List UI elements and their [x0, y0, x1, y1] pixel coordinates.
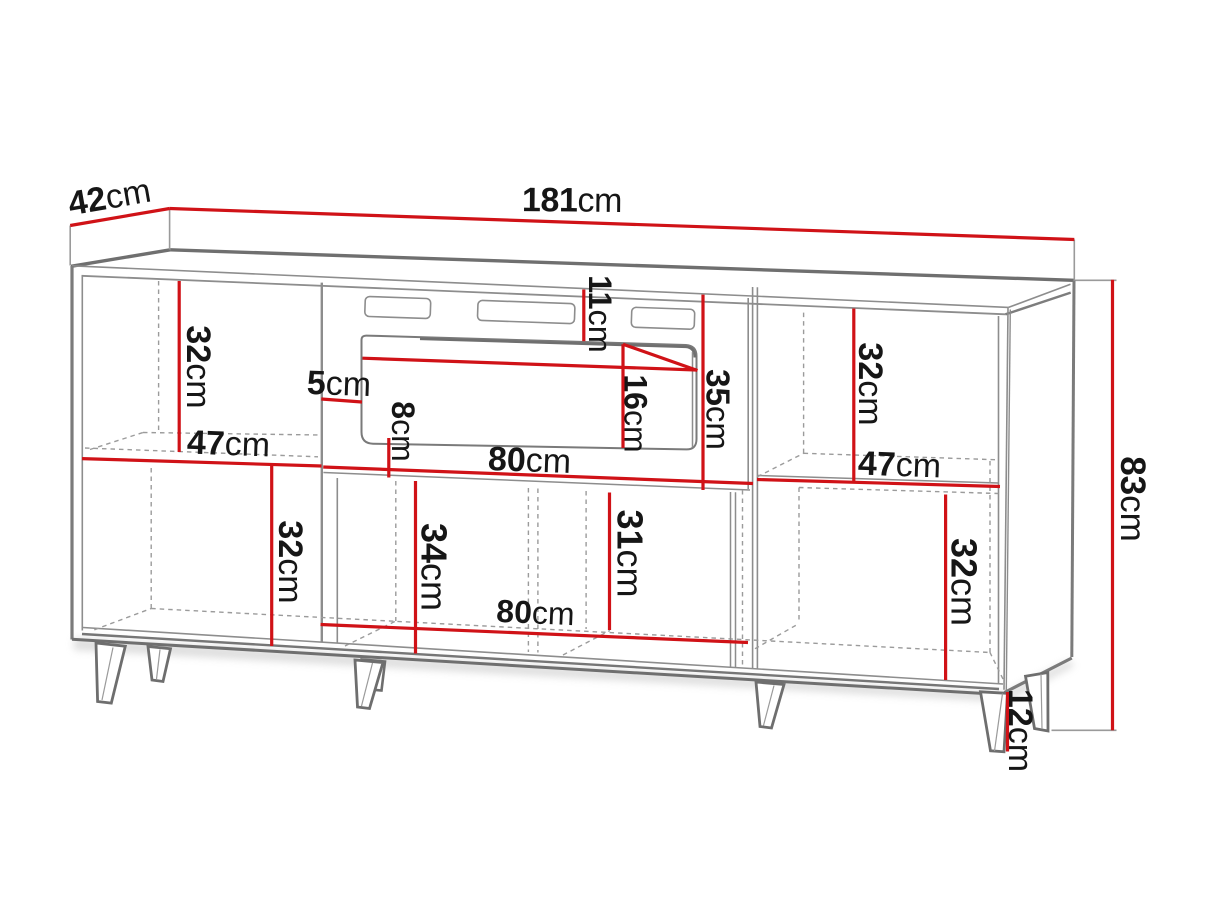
svg-text:35cm: 35cm: [700, 369, 737, 450]
svg-text:16cm: 16cm: [618, 374, 654, 452]
svg-text:80cm: 80cm: [496, 593, 576, 632]
svg-text:181cm: 181cm: [522, 181, 622, 220]
svg-text:80cm: 80cm: [487, 440, 571, 481]
svg-text:8cm: 8cm: [385, 401, 421, 461]
svg-text:11cm: 11cm: [582, 275, 618, 353]
svg-text:12cm: 12cm: [1001, 689, 1039, 772]
svg-text:32cm: 32cm: [851, 342, 889, 425]
svg-text:83cm: 83cm: [1114, 456, 1153, 542]
svg-text:47cm: 47cm: [186, 424, 270, 465]
svg-text:32cm: 32cm: [179, 325, 217, 408]
svg-text:32cm: 32cm: [271, 520, 309, 603]
svg-text:34cm: 34cm: [414, 523, 455, 611]
svg-text:5cm: 5cm: [306, 364, 372, 404]
svg-text:31cm: 31cm: [610, 509, 651, 597]
svg-text:47cm: 47cm: [857, 445, 941, 486]
svg-text:32cm: 32cm: [944, 538, 985, 626]
